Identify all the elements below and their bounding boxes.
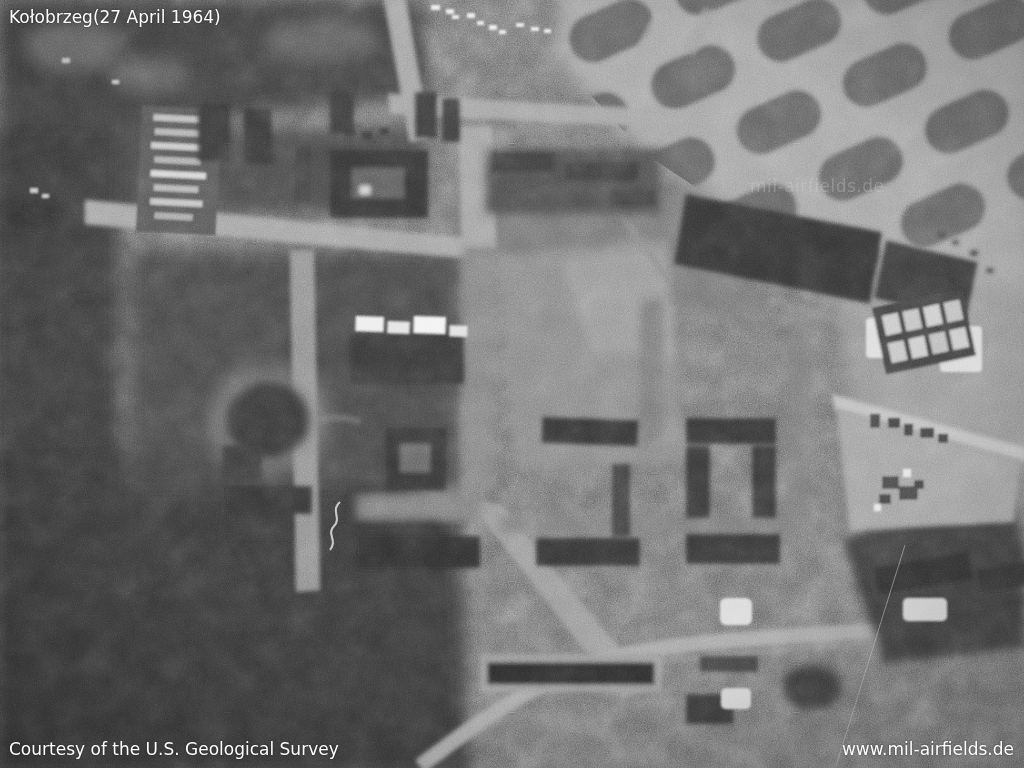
vignette	[0, 0, 1024, 768]
photo-canvas	[0, 0, 1024, 768]
photo-watermark: mil-airfields.de	[750, 176, 884, 196]
photo-title: Kołobrzeg(27 April 1964)	[9, 7, 221, 27]
screenshot-root: Kołobrzeg(27 April 1964) mil-airfields.d…	[0, 0, 1024, 768]
website-url: www.mil-airfields.de	[842, 739, 1014, 759]
usgs-credit: Courtesy of the U.S. Geological Survey	[9, 739, 339, 759]
